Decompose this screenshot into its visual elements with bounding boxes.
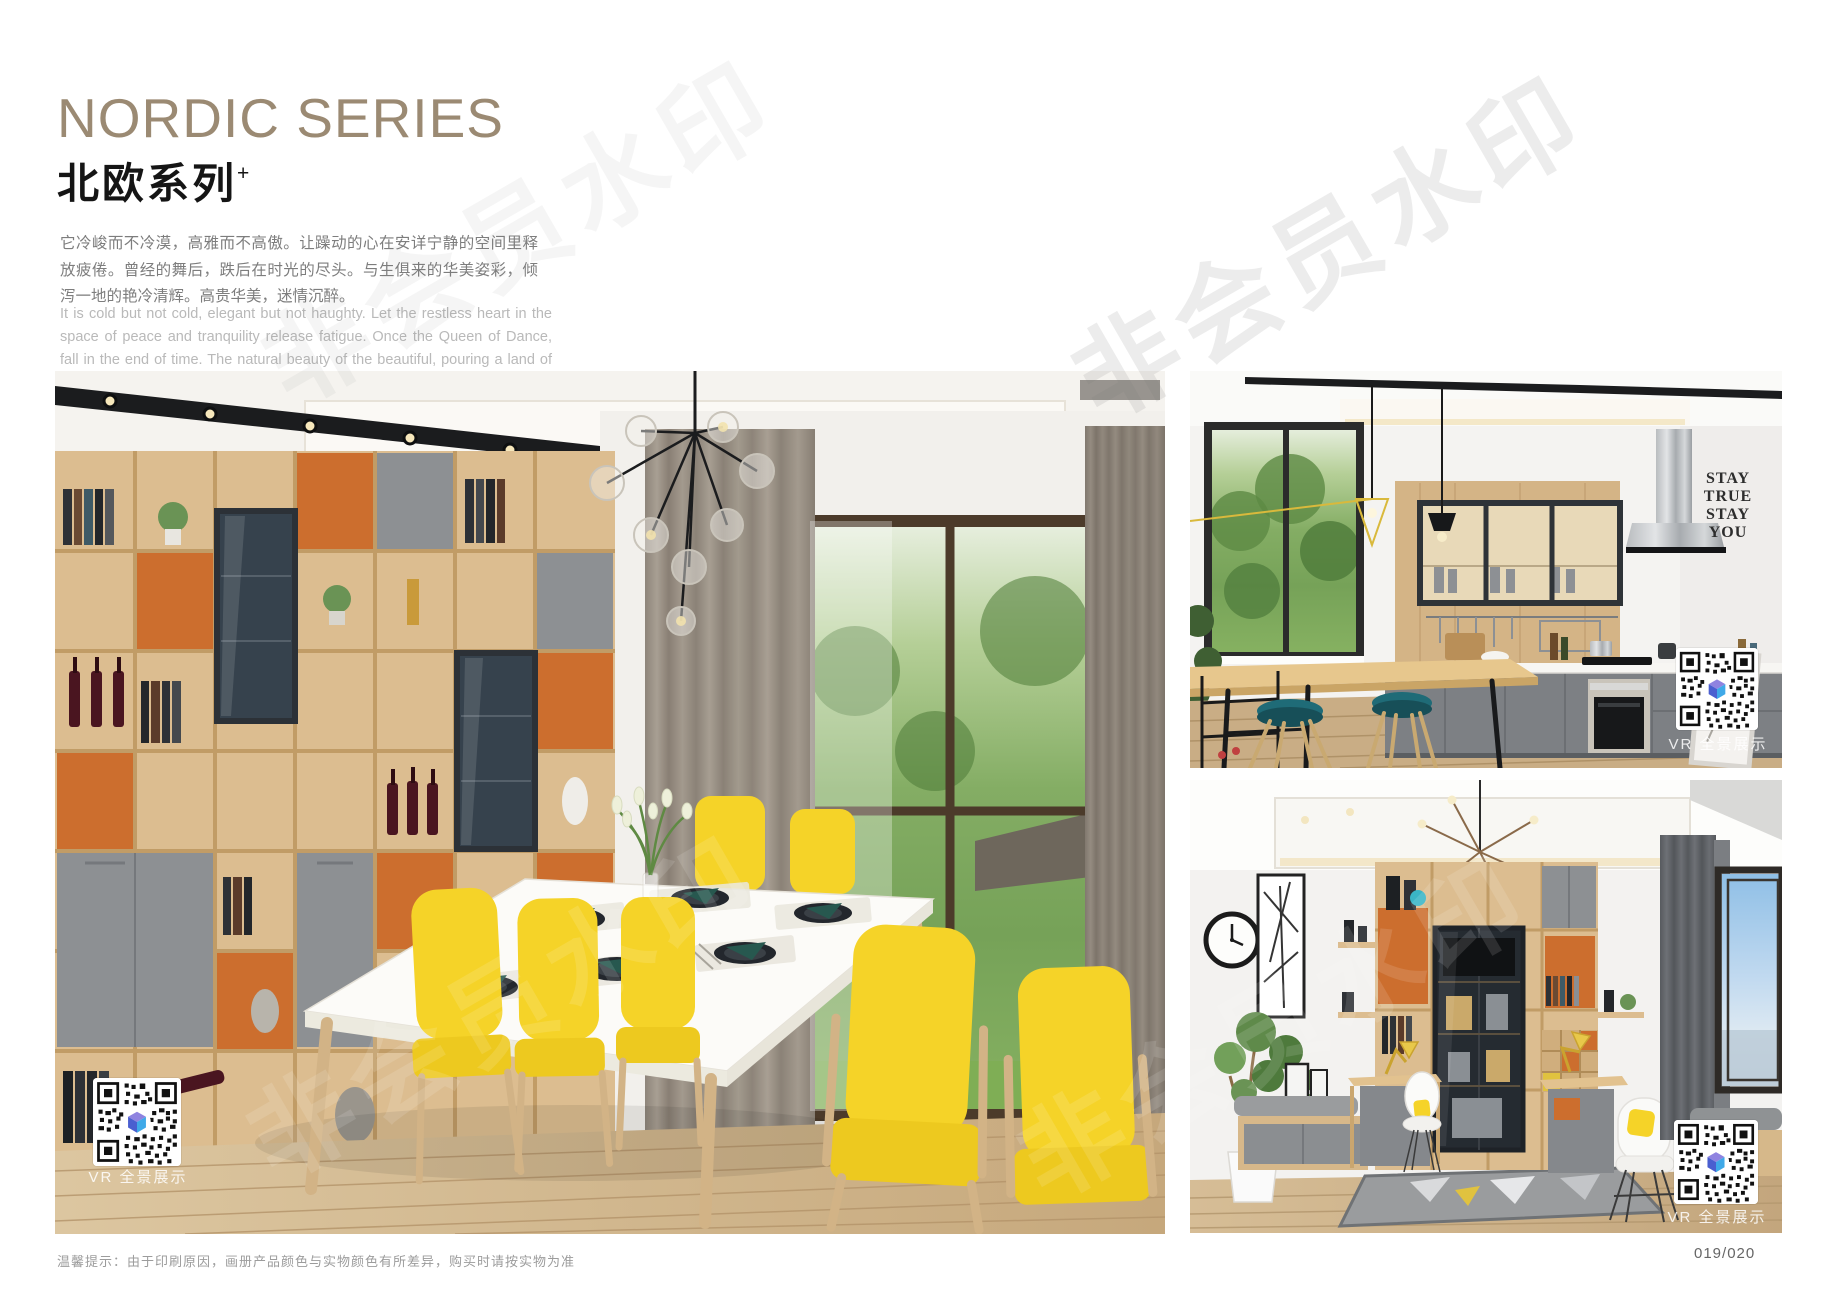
qr-code <box>1674 1120 1758 1204</box>
vr-label: VR 全景展示 <box>82 1166 194 1187</box>
footer-note: 温馨提示：由于印刷原因，画册产品颜色与实物颜色有所差异，购买时请按实物为准 <box>57 1251 575 1270</box>
svg-text:STAY: STAY <box>1706 470 1750 487</box>
glass-cabinet <box>1435 928 1523 1150</box>
wall-clock <box>1206 914 1258 966</box>
series-title-cn: 北欧系列+ <box>57 150 249 211</box>
vr-label: VR 全景展示 <box>1661 1206 1773 1227</box>
svg-text:TRUE: TRUE <box>1704 488 1752 505</box>
series-title-plus: + <box>237 162 249 185</box>
qr-code <box>93 1078 181 1166</box>
dining-room-photo <box>55 371 1165 1234</box>
vr-label: VR 全景展示 <box>1662 733 1774 754</box>
oven <box>1588 679 1650 753</box>
wall-art <box>1258 875 1304 1017</box>
wall-quote: STAY TRUE STAY YOU <box>1704 470 1752 541</box>
description-chinese: 它冷峻而不冷漠，高雅而不高傲。让躁动的心在安详宁静的空间里释放疲倦。曾经的舞后，… <box>60 231 538 311</box>
qr-code <box>1676 648 1758 730</box>
svg-text:STAY: STAY <box>1706 506 1750 523</box>
ceiling <box>1190 371 1782 426</box>
trophy <box>407 579 419 625</box>
page-number: 019/020 <box>1694 1245 1755 1262</box>
upper-cabinet <box>1395 481 1620 671</box>
kitchen-window <box>1204 426 1364 664</box>
study-window <box>1718 870 1782 1090</box>
teal-vase <box>1410 890 1426 906</box>
dining-room-scene <box>55 371 1165 1234</box>
svg-text:YOU: YOU <box>1709 524 1748 541</box>
series-title-en: NORDIC SERIES <box>57 86 504 150</box>
series-title-cn-text: 北欧系列 <box>57 160 237 207</box>
